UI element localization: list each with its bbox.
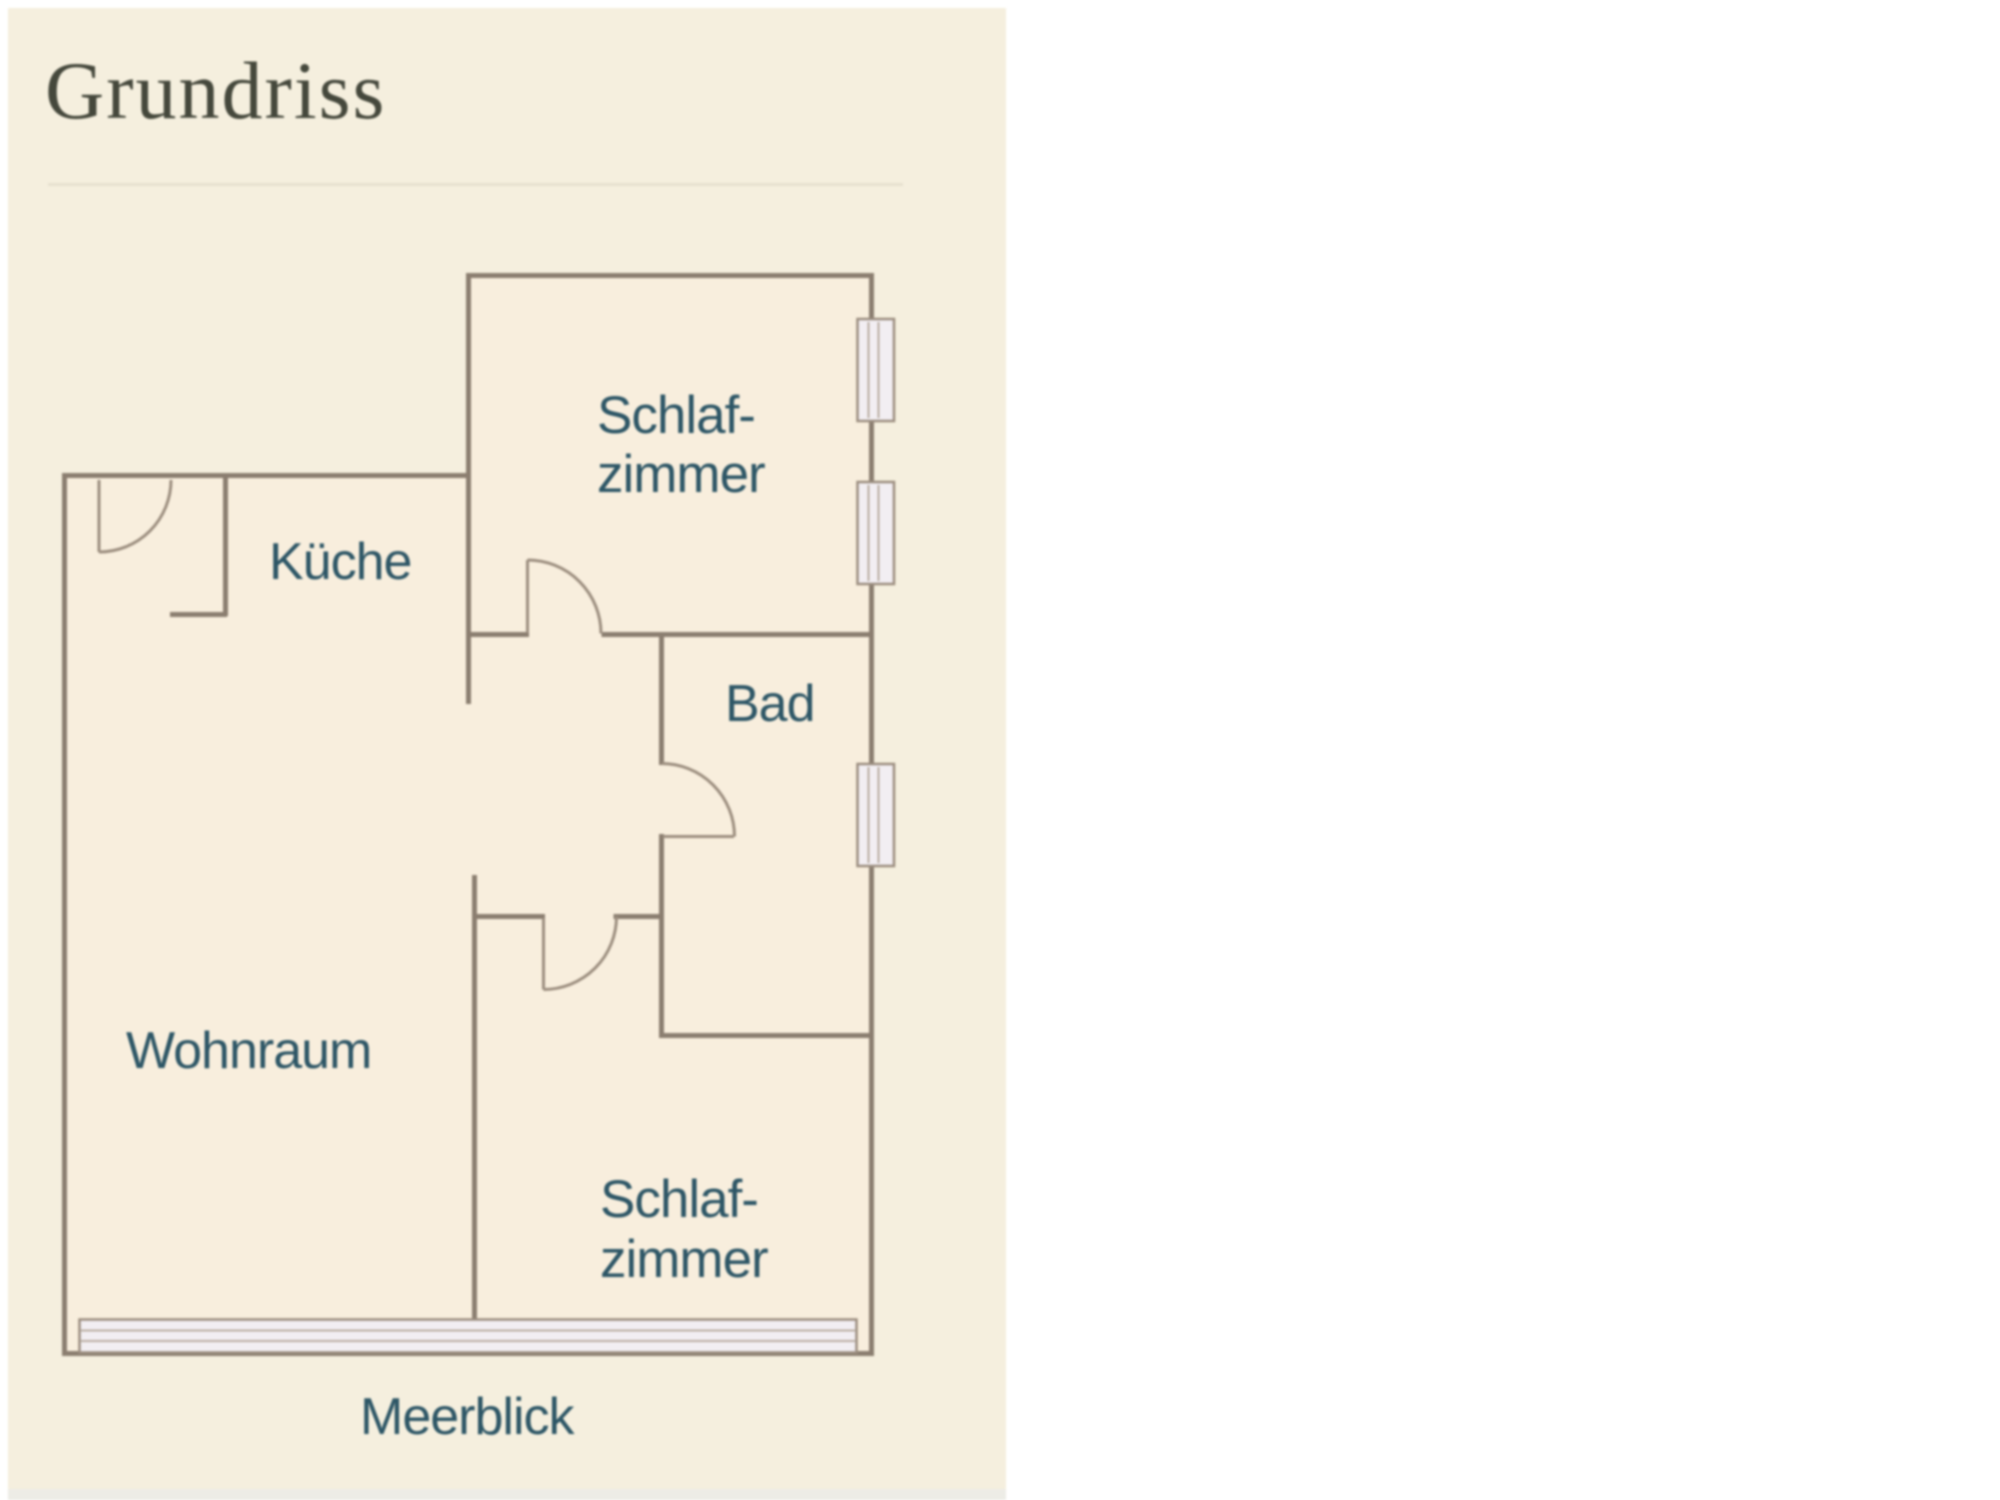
svg-text:Küche: Küche: [269, 533, 411, 591]
svg-text:zimmer: zimmer: [600, 1230, 768, 1289]
svg-text:Wohnraum: Wohnraum: [126, 1022, 371, 1080]
svg-text:Meerblick: Meerblick: [360, 1388, 575, 1446]
svg-text:Schlaf-: Schlaf-: [600, 1170, 758, 1229]
svg-text:Bad: Bad: [725, 675, 815, 733]
svg-text:zimmer: zimmer: [597, 445, 765, 504]
svg-text:Schlaf-: Schlaf-: [597, 386, 755, 445]
